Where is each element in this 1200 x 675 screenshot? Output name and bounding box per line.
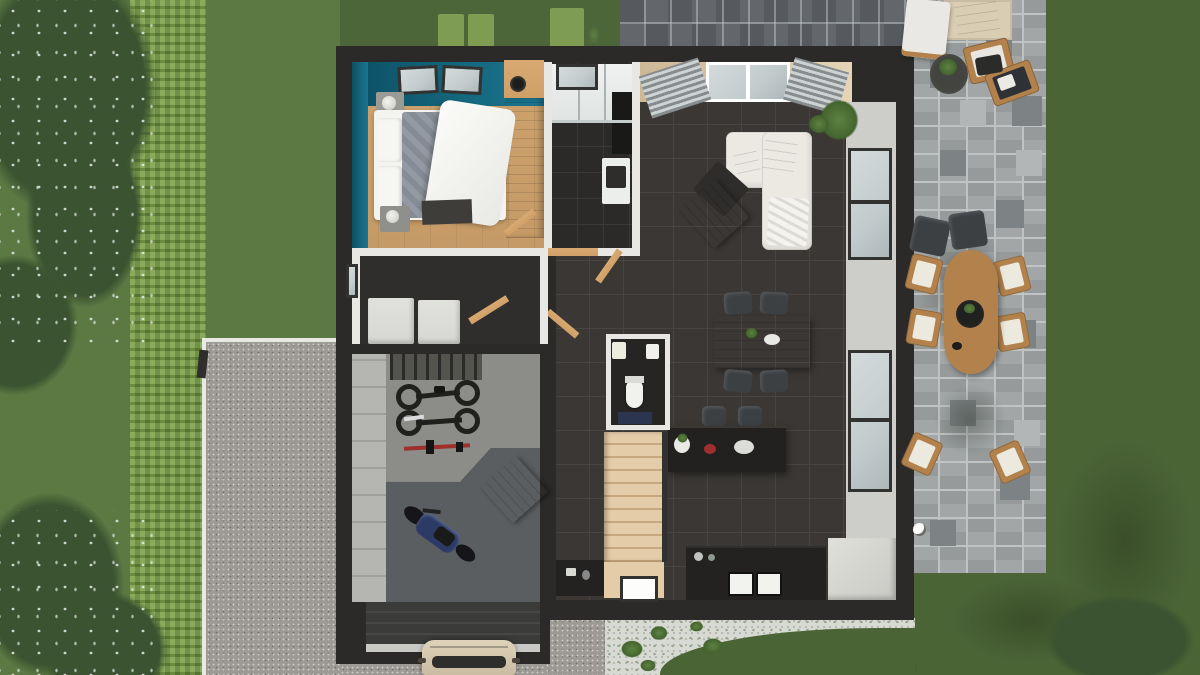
kitchen-sink: [728, 572, 754, 596]
dining-chair: [723, 369, 753, 393]
paving-tile-light: [1016, 150, 1042, 176]
garden-plant: [688, 620, 705, 633]
table-plant: [744, 326, 759, 340]
lounge-chair-dark: [948, 210, 989, 251]
sofa-tray: [762, 138, 798, 172]
kitchen-cabinet-light: [828, 538, 896, 600]
bathroom-window: [556, 64, 598, 90]
desk-item: [582, 570, 590, 580]
patio-chair: [905, 307, 943, 348]
paving-tile-light: [960, 100, 986, 126]
patio-chair: [993, 311, 1031, 352]
wc-washbasin: [612, 342, 626, 359]
desk-item: [566, 568, 576, 576]
entry-window: [620, 576, 658, 602]
bicycle: [396, 404, 488, 438]
garage-wall-left-face: [352, 354, 386, 602]
shower-wall-dark: [612, 92, 632, 154]
bedside-lamp: [382, 96, 396, 110]
table-bowl: [764, 334, 780, 345]
dining-chair: [723, 291, 752, 315]
garden-plant: [618, 638, 646, 660]
entry-desk: [556, 560, 604, 596]
paving-tile: [1012, 96, 1042, 126]
outdoor-white-sofa: [901, 0, 951, 60]
pendant-lamp: [510, 76, 526, 92]
dining-chair: [759, 369, 788, 392]
sapling-plant: [586, 22, 602, 48]
shower-screen-edge: [552, 120, 632, 123]
dining-table: [714, 316, 810, 368]
stair-railing: [662, 432, 667, 562]
toilet-cistern: [625, 376, 644, 383]
door-threshold: [548, 248, 598, 256]
car-hood-line: [430, 646, 508, 648]
right-window-mullion: [848, 200, 892, 204]
bar-stool: [738, 406, 762, 426]
garden-plant: [700, 636, 726, 656]
bedroom-rug: [422, 199, 473, 225]
washbasin-cabinet: [602, 158, 630, 204]
bedroom-wall-left: [352, 62, 368, 250]
shower-glass-line: [604, 64, 606, 122]
bar-stool: [702, 406, 726, 426]
kitchen-sink: [756, 572, 782, 596]
wall-bedroom-south: [352, 248, 650, 256]
staircase: [604, 432, 664, 562]
utility-wall-right: [540, 256, 548, 344]
gravel-driveway: [202, 338, 344, 675]
red-bowl: [704, 444, 716, 454]
toilet: [626, 380, 643, 408]
wall-bedroom-bathroom: [544, 62, 552, 250]
bedroom-window: [441, 65, 482, 95]
table-centerpiece-plant: [962, 302, 977, 315]
car-mirror: [418, 658, 426, 663]
garage-door: [366, 602, 540, 644]
scene-floorplan-render: [0, 0, 1200, 675]
island-plant: [676, 432, 689, 444]
tree-blossoms: [0, 510, 160, 675]
bay-window-mullion: [746, 62, 750, 102]
dining-chair: [759, 291, 788, 314]
gravel-path: [545, 618, 607, 675]
paving-tile: [930, 520, 956, 546]
tree-blossoms: [0, 0, 165, 345]
bedroom-window: [397, 65, 438, 95]
wc-dispenser: [646, 344, 659, 359]
outdoor-plant: [936, 56, 960, 78]
plate: [734, 440, 754, 454]
wall-utility-garage: [352, 344, 548, 354]
storage-rack: [390, 354, 482, 380]
car-windshield: [432, 656, 506, 668]
right-window-north: [848, 148, 892, 260]
bedside-lamp: [386, 210, 399, 223]
countertop-item: [694, 552, 703, 561]
paving-tile: [940, 150, 966, 176]
pillow: [378, 118, 402, 162]
right-window-mullion: [848, 418, 892, 422]
utility-window: [346, 264, 358, 298]
red-bicycle: [398, 440, 478, 456]
wall-bathroom-living: [632, 62, 640, 250]
sofa-tray: [732, 144, 761, 174]
garden-plant: [638, 658, 658, 673]
washing-machine: [368, 298, 414, 344]
lounge-chair-dark: [909, 215, 952, 258]
outdoor-bench: [954, 0, 1000, 35]
wc-mat: [618, 412, 652, 424]
car-mirror: [512, 658, 520, 663]
countertop-item: [708, 554, 715, 561]
beige-car: [422, 640, 516, 675]
table-item: [952, 342, 962, 350]
garden-plant: [648, 624, 670, 642]
sofa-throw: [767, 197, 809, 247]
basin: [606, 166, 626, 188]
corner-plant-leaf: [806, 112, 832, 136]
soccer-ball: [913, 523, 926, 536]
pillow: [378, 166, 402, 210]
patio-paving-top: [620, 0, 912, 48]
dryer: [418, 300, 460, 344]
